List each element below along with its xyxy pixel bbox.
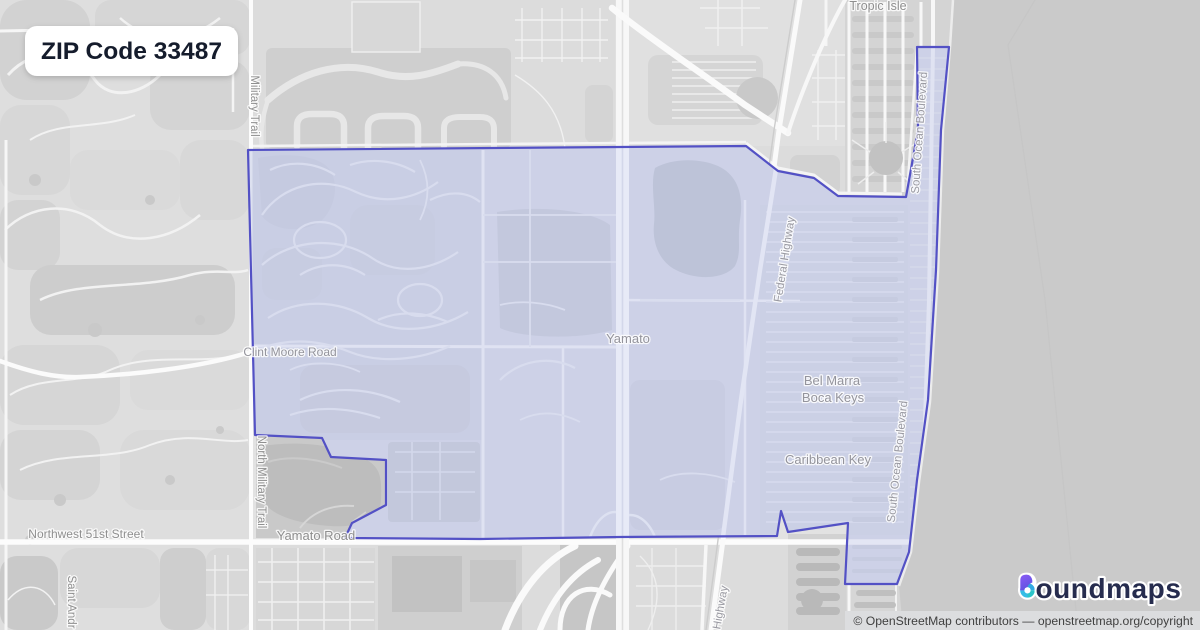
svg-text:oundmaps: oundmaps [1036,573,1182,604]
svg-text:Tropic Isle: Tropic Isle [849,0,906,13]
svg-text:Military Trail: Military Trail [248,75,260,136]
svg-text:Clint Moore Road: Clint Moore Road [243,345,336,359]
svg-text:North Military Trail: North Military Trail [255,436,267,529]
svg-text:ZIP Code 33487: ZIP Code 33487 [41,38,222,65]
svg-text:Yamato Road: Yamato Road [277,528,356,543]
svg-text:Caribbean Key: Caribbean Key [785,452,871,467]
svg-text:Northwest 51st Street: Northwest 51st Street [28,527,144,541]
svg-text:Bel Marra: Bel Marra [804,373,861,388]
svg-text:© OpenStreetMap contributors —: © OpenStreetMap contributors — openstree… [853,614,1193,628]
svg-text:Saint Andr: Saint Andr [65,575,77,628]
svg-text:Yamato: Yamato [606,331,650,346]
svg-text:Boca Keys: Boca Keys [802,390,865,405]
